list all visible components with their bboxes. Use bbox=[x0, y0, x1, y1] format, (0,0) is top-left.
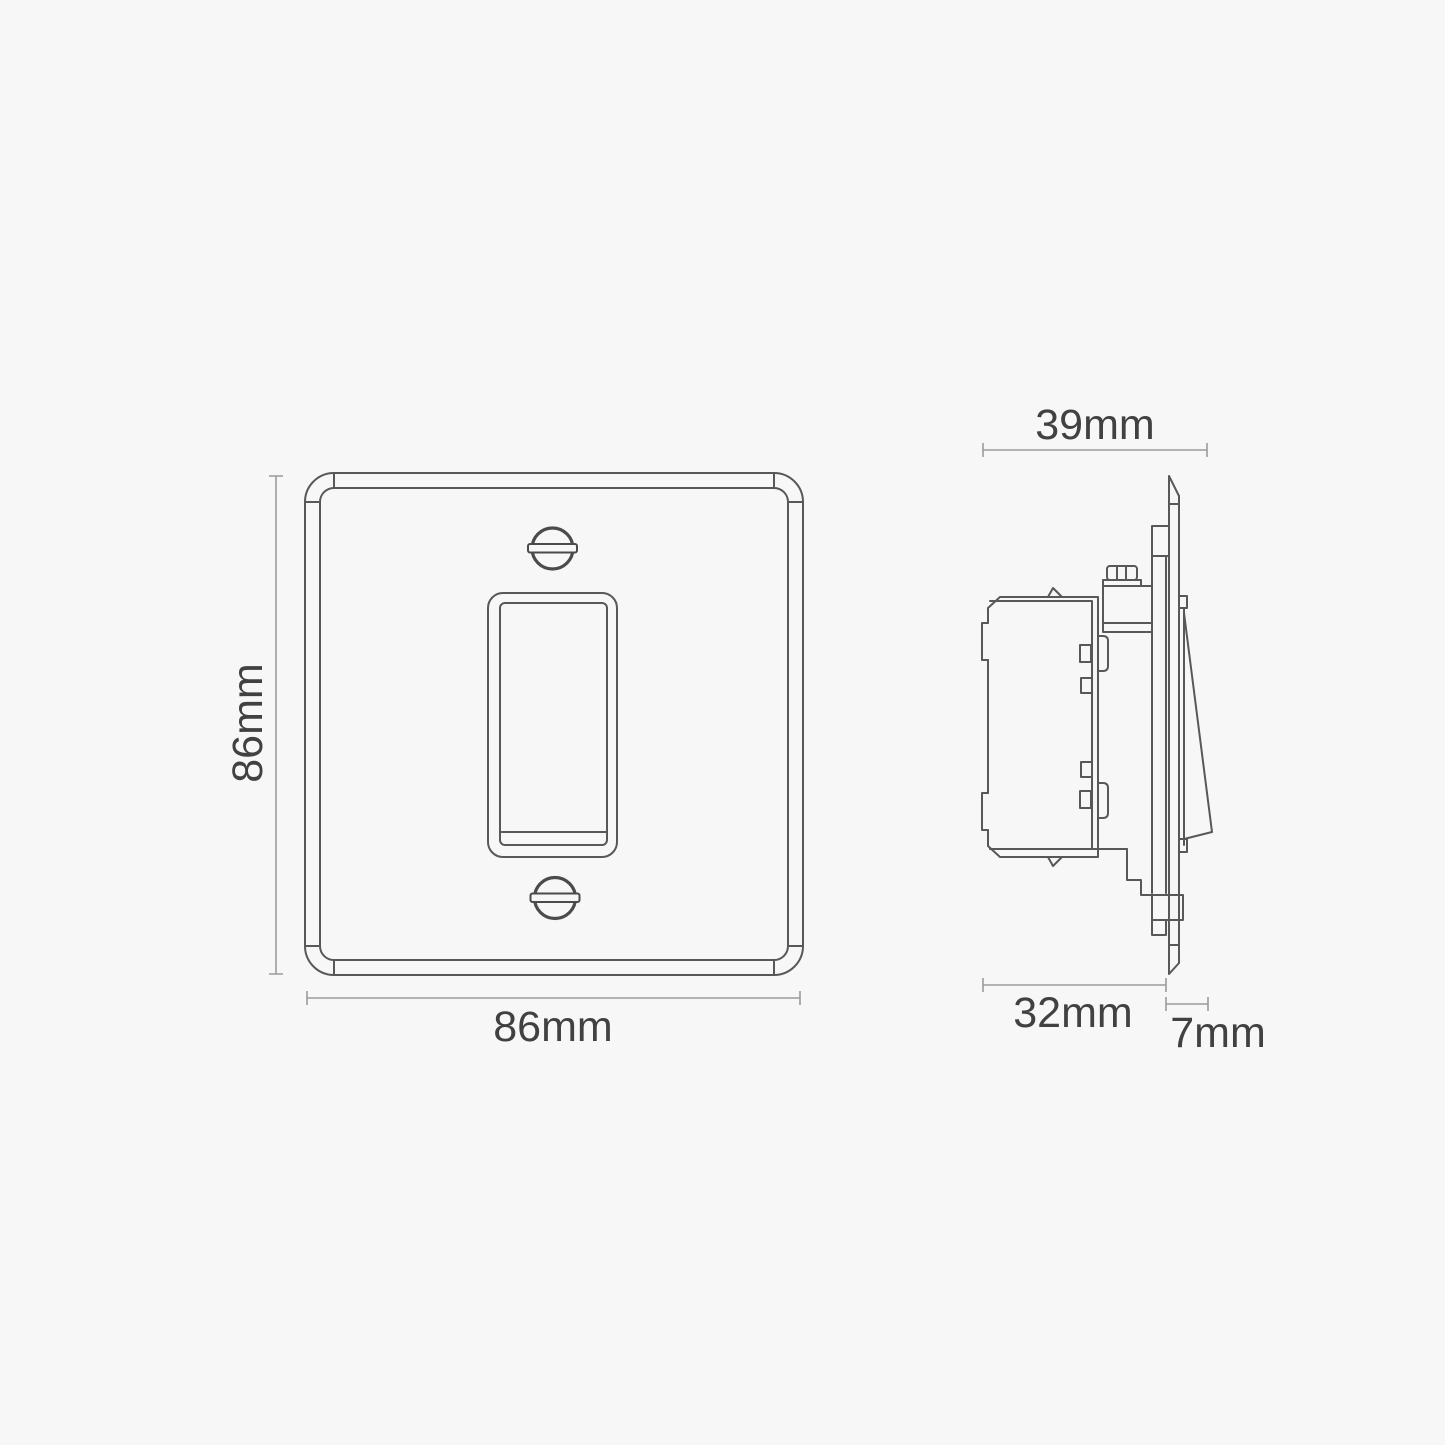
plate-thickness-dimension: 7mm bbox=[1166, 997, 1266, 1057]
rocker-outer-outline bbox=[488, 593, 617, 857]
box-right-hook-bottom bbox=[1098, 783, 1108, 818]
screw-bottom bbox=[531, 878, 580, 919]
height-dimension-label: 86mm bbox=[224, 663, 272, 782]
rocker-inner-outline bbox=[500, 603, 607, 845]
box-outline bbox=[988, 597, 1098, 857]
box-right-detail-rect-3 bbox=[1081, 762, 1092, 777]
screw-top bbox=[528, 528, 577, 569]
rocker-top-step bbox=[1179, 596, 1187, 608]
depth-dimension-label: 39mm bbox=[1035, 401, 1154, 449]
width-dimension-label: 86mm bbox=[493, 1003, 612, 1051]
faceplate-inner-outline bbox=[320, 488, 788, 960]
width-dimension: 86mm bbox=[307, 991, 800, 1051]
rocker-side bbox=[1179, 596, 1212, 852]
screw-slot bbox=[531, 894, 580, 903]
yoke-bottom-foot bbox=[1152, 920, 1166, 935]
dimension-diagram: 86mm 86mm bbox=[0, 0, 1445, 1445]
depth-dimension: 39mm bbox=[983, 401, 1207, 457]
mounting-yoke-side bbox=[1127, 526, 1183, 935]
rocker-front bbox=[488, 593, 617, 857]
rocker-wedge bbox=[1184, 613, 1212, 839]
fixing-lug-side bbox=[1103, 566, 1152, 632]
box-right-hook-top bbox=[1098, 636, 1108, 671]
plate-thickness-dimension-label: 7mm bbox=[1170, 1009, 1266, 1057]
faceplate-side-outline bbox=[1169, 476, 1179, 974]
lug-block bbox=[1103, 586, 1152, 632]
module-box-side bbox=[982, 588, 1127, 866]
side-view: 39mm 32mm 7mm bbox=[982, 401, 1266, 1057]
screw-slot bbox=[528, 544, 577, 553]
box-right-detail-rect-4 bbox=[1080, 791, 1091, 808]
front-view: 86mm 86mm bbox=[224, 473, 803, 1051]
box-bottom-clip bbox=[1048, 857, 1062, 866]
box-top-clip bbox=[1048, 588, 1062, 597]
yoke-top-block bbox=[1152, 526, 1169, 556]
box-right-detail-rect-1 bbox=[1080, 645, 1091, 662]
box-right-detail-rect-2 bbox=[1081, 678, 1092, 693]
side-screw-slot-lines bbox=[1117, 566, 1126, 580]
module-depth-dimension: 32mm bbox=[983, 978, 1166, 1037]
side-screw-head bbox=[1107, 566, 1137, 580]
yoke-bottom-staircase bbox=[1127, 849, 1152, 895]
module-depth-dimension-label: 32mm bbox=[1013, 989, 1132, 1037]
height-dimension: 86mm bbox=[224, 476, 283, 974]
switch-dimension-drawing: 86mm 86mm bbox=[0, 0, 1445, 1445]
yoke-bar bbox=[1152, 556, 1166, 893]
faceplate-side bbox=[1169, 476, 1179, 974]
